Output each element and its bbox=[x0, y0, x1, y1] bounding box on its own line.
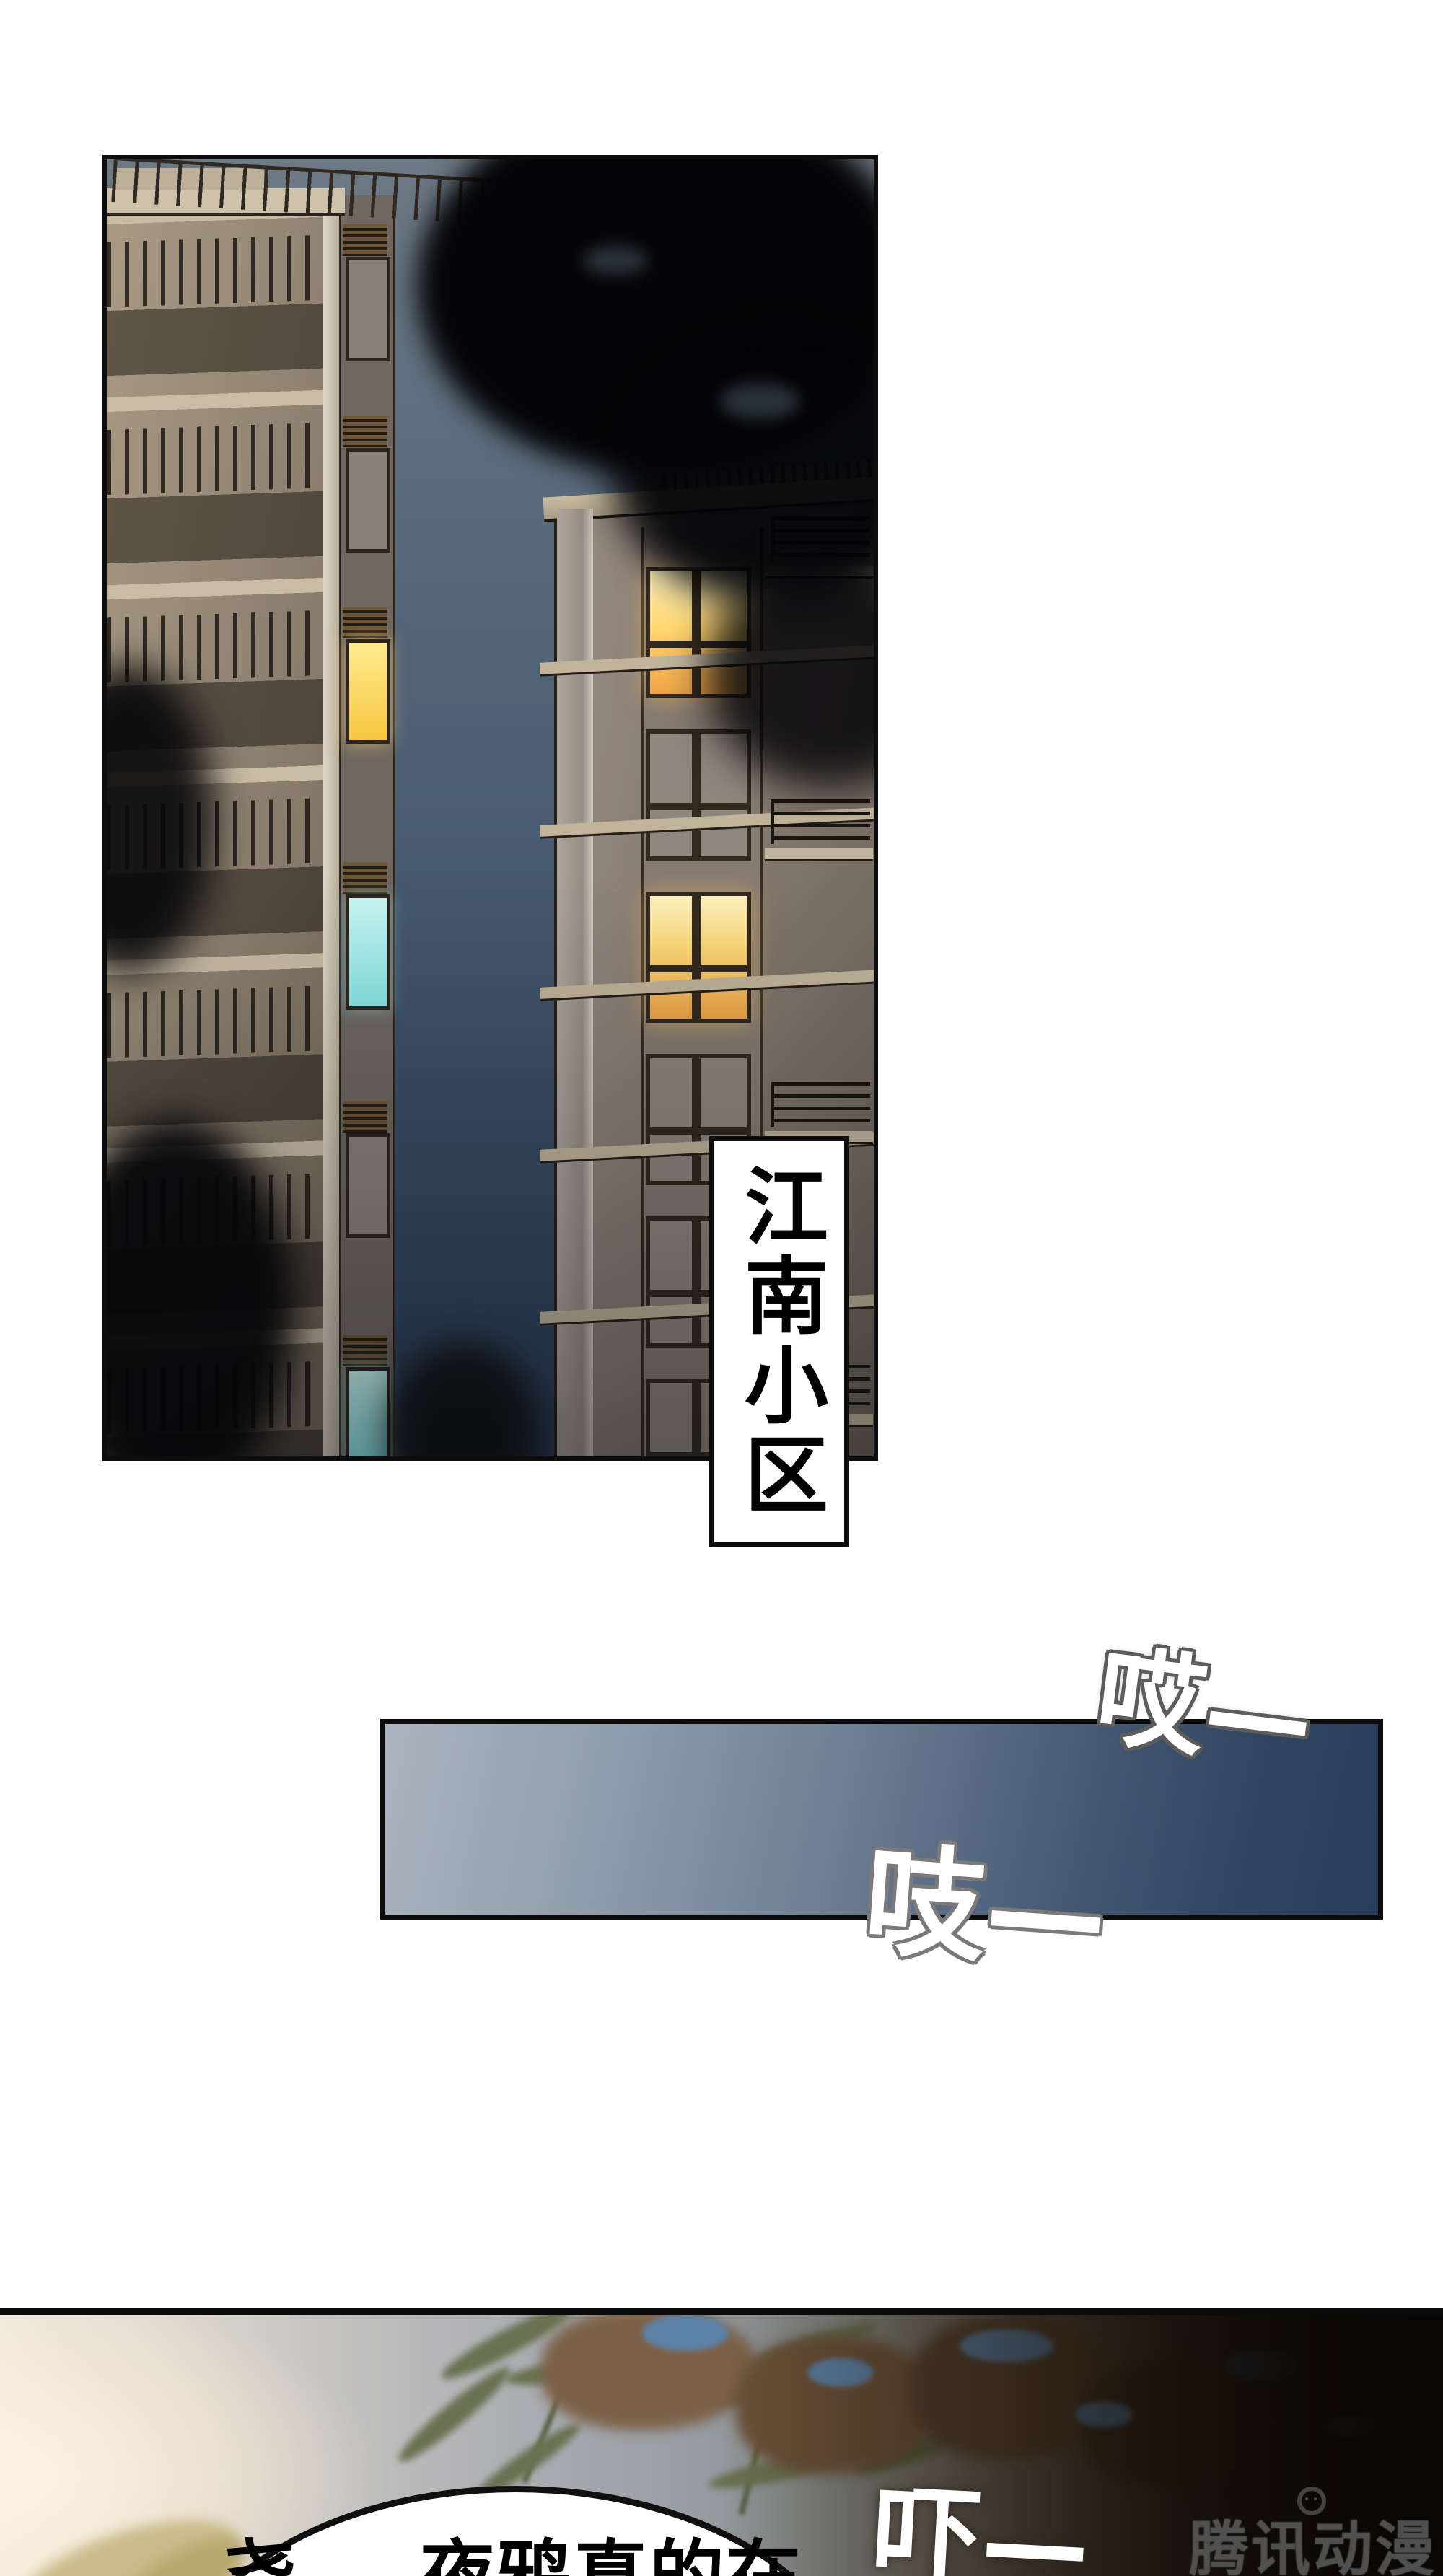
tencent-watermark: 腾讯动漫 bbox=[1189, 2501, 1437, 2576]
location-label: 江南小区 bbox=[709, 1136, 849, 1547]
location-label-text: 江南小区 bbox=[737, 1163, 821, 1521]
foliage-highlight bbox=[720, 383, 799, 419]
garden-scene-panel: 尧 ， 夜鸦真的在 吓— 腾讯动漫 bbox=[0, 2308, 1443, 2576]
sfx-creak-bottom: 吓— bbox=[870, 2482, 1092, 2576]
sfx-creak-mid: 吱— bbox=[861, 1839, 1111, 1977]
comic-page: 江南小区 哎— 吱— 尧 ， 夜鸦真的在 吓 bbox=[0, 0, 1443, 2576]
foliage-highlight bbox=[583, 246, 648, 275]
sfx-creak-top: 哎— bbox=[1091, 1643, 1319, 1776]
watermark-face-icon bbox=[1297, 2487, 1326, 2515]
watermark-text: 腾讯动漫 bbox=[1189, 2517, 1437, 2576]
speech-bubble-text: 尧 ， 夜鸦真的在 bbox=[180, 2514, 844, 2576]
